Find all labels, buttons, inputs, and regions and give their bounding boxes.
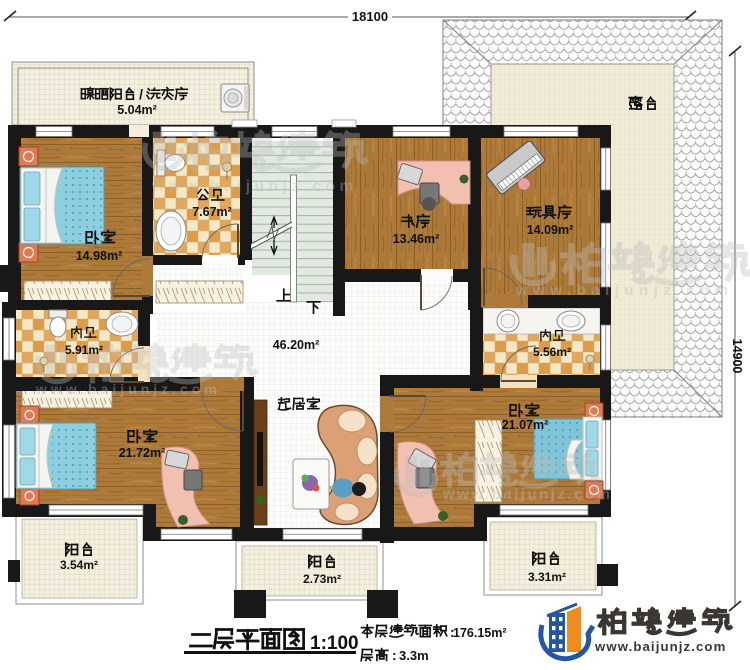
svg-text:13.46m²: 13.46m²	[393, 232, 440, 246]
svg-text:www.baijunjz.com: www.baijunjz.com	[442, 486, 612, 503]
svg-text:2.73m²: 2.73m²	[303, 572, 341, 586]
svg-text:21.07m²: 21.07m²	[502, 418, 549, 432]
svg-text:www.baijunjz.com: www.baijunjz.com	[515, 282, 733, 299]
svg-text:www.baijunjz.com: www.baijunjz.com	[151, 178, 358, 195]
svg-text:5.56m²: 5.56m²	[533, 345, 571, 359]
svg-text:3.3m: 3.3m	[399, 648, 429, 663]
svg-text:3.31m²: 3.31m²	[528, 570, 566, 584]
svg-text:5.04m²: 5.04m²	[117, 103, 157, 117]
svg-text:14.09m²: 14.09m²	[527, 223, 574, 237]
svg-text:/: /	[139, 86, 143, 102]
svg-text:21.72m²: 21.72m²	[119, 446, 166, 460]
svg-text:3.54m²: 3.54m²	[60, 558, 98, 572]
svg-text:176.15m²: 176.15m²	[453, 626, 507, 640]
svg-text:www.baijunjz.com: www.baijunjz.com	[594, 639, 726, 654]
svg-text:14900: 14900	[730, 339, 744, 374]
svg-text:46.20m²: 46.20m²	[273, 338, 320, 352]
svg-text:www.baijunjz.com: www.baijunjz.com	[35, 381, 221, 397]
svg-text:5.91m²: 5.91m²	[65, 343, 103, 357]
svg-text:7.67m²: 7.67m²	[192, 205, 232, 219]
svg-text:14.98m²: 14.98m²	[76, 249, 123, 263]
svg-text:18100: 18100	[352, 9, 388, 24]
svg-text::: :	[392, 647, 397, 663]
svg-text:1:100: 1:100	[310, 633, 359, 654]
